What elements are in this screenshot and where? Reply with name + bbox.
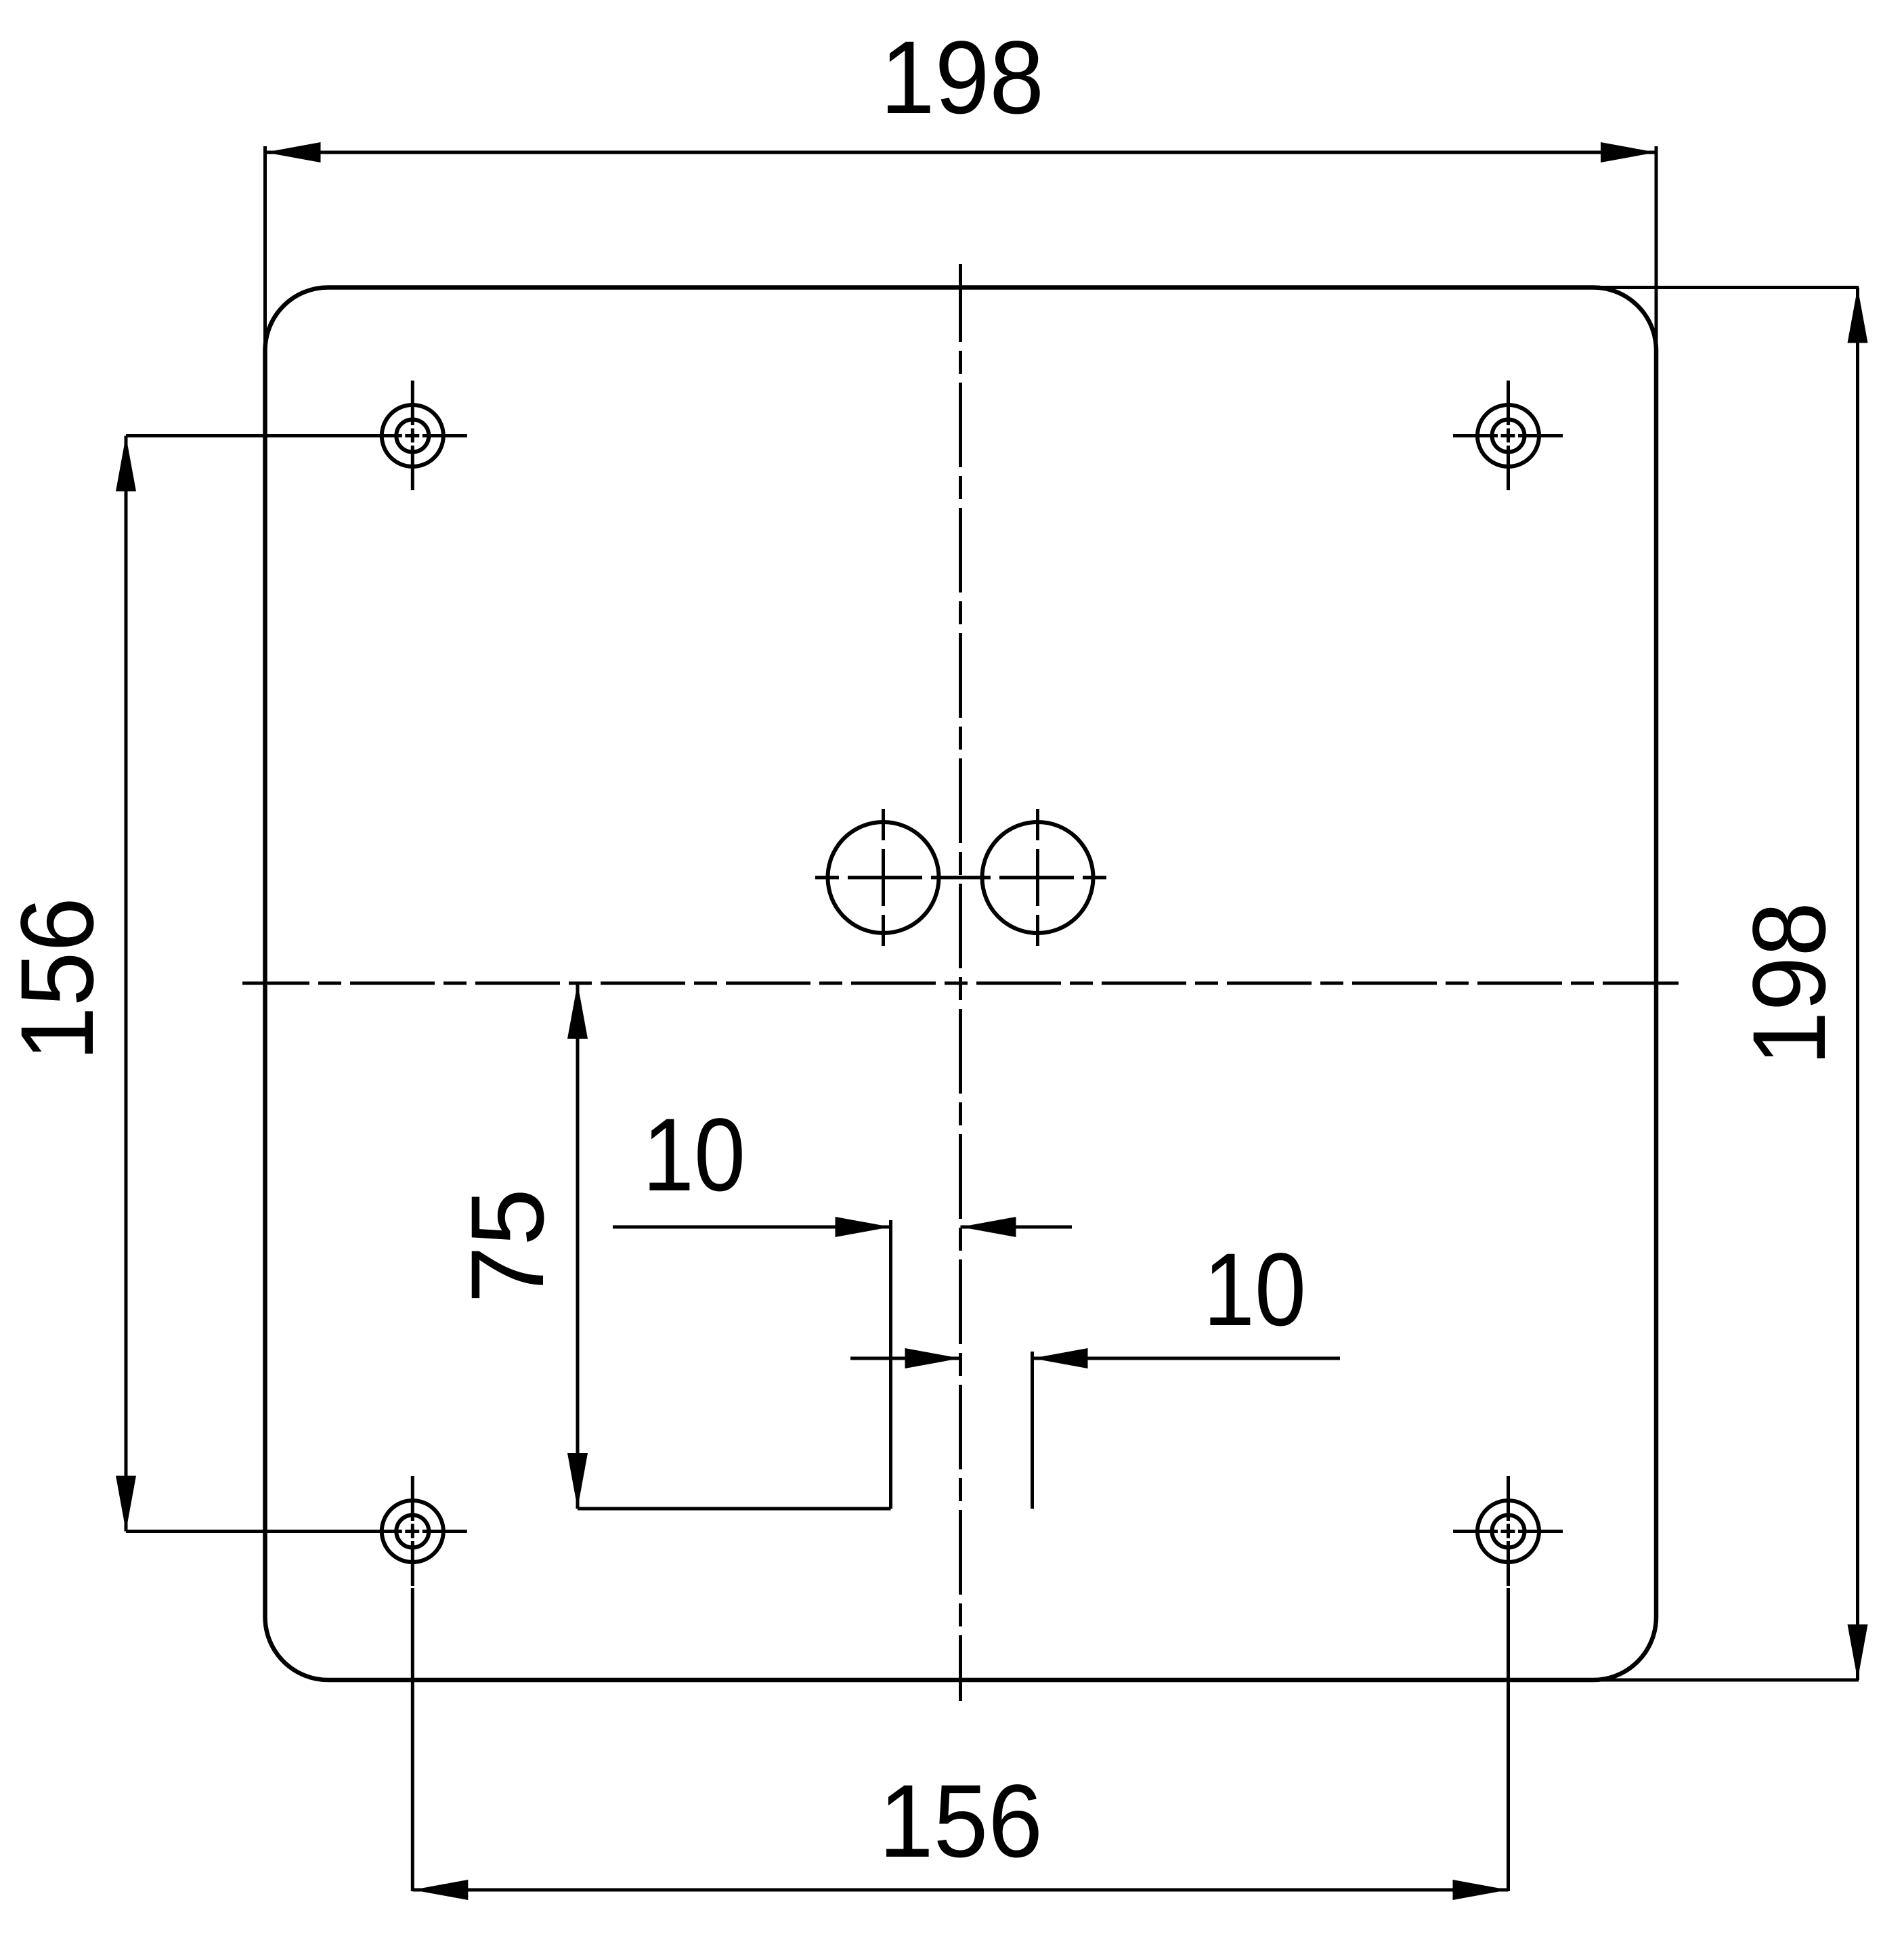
svg-text:10: 10	[643, 1097, 745, 1213]
svg-text:75: 75	[450, 1188, 565, 1303]
svg-text:198: 198	[1731, 902, 1847, 1066]
svg-text:156: 156	[879, 1763, 1043, 1879]
svg-text:10: 10	[1203, 1232, 1306, 1347]
svg-text:198: 198	[880, 20, 1044, 135]
svg-text:156: 156	[0, 897, 115, 1061]
